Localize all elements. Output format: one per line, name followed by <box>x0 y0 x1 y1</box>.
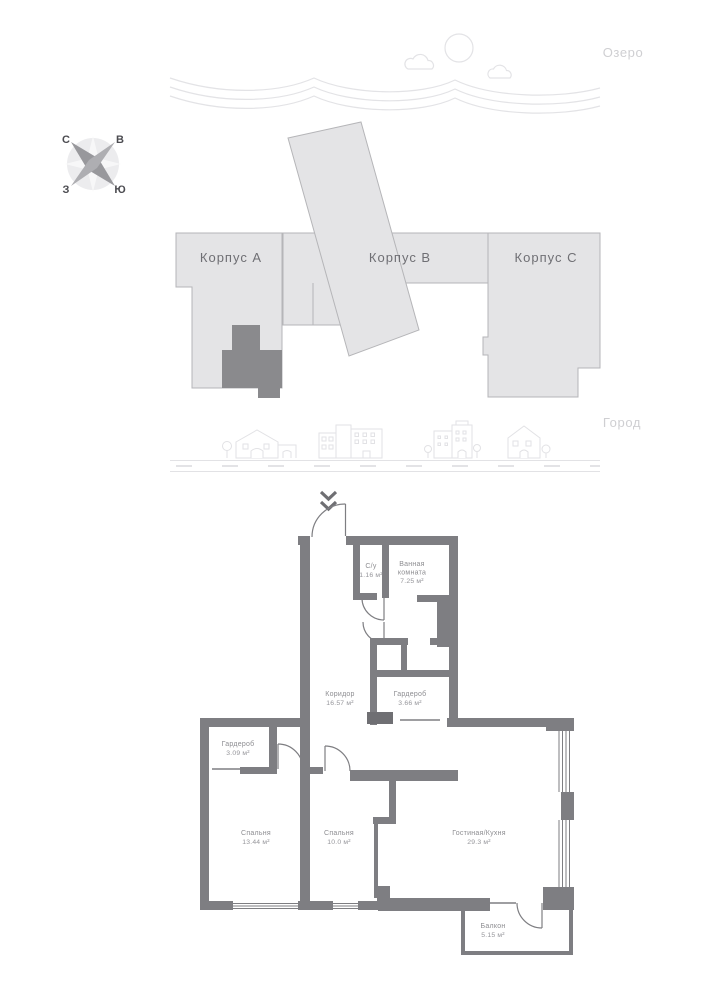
buildings-sketch <box>425 421 481 458</box>
room-area: 1.16 м² <box>359 572 383 579</box>
room-name: Ванная <box>399 561 424 568</box>
room-label-wardrobe-1: Гардероб 3.66 м² <box>394 690 427 707</box>
city-label: Город <box>603 415 641 430</box>
room-area: 29.3 м² <box>467 839 491 846</box>
building-c-label: Корпус С <box>515 250 578 265</box>
buildings-sketch <box>319 425 382 458</box>
plan-canvas: Озеро С В З Ю Корпус А Корпус В Корпус С <box>0 0 707 1000</box>
lake-label: Озеро <box>603 45 644 60</box>
room-name: Коридор <box>325 691 354 698</box>
road <box>170 461 600 472</box>
room-label-balcony: Балкон 5.15 м² <box>481 923 506 939</box>
opening-lines <box>212 720 516 903</box>
sun-icon <box>445 34 473 62</box>
room-label-bathroom: Ванная комната 7.25 м² <box>398 561 426 585</box>
room-name: Гардероб <box>394 690 427 698</box>
room-label-su: С/у 1.16 м² <box>359 563 383 579</box>
room-area: 3.09 м² <box>226 750 250 757</box>
room-name: С/у <box>365 563 377 570</box>
room-area: 16.57 м² <box>326 700 354 707</box>
compass-icon: С В З Ю <box>62 134 126 196</box>
building-a-label: Корпус А <box>200 250 262 265</box>
room-area: 3.66 м² <box>398 700 422 707</box>
windows <box>233 731 570 909</box>
room-label-corridor: Коридор 16.57 м² <box>325 691 354 707</box>
room-area: 7.25 м² <box>400 578 424 585</box>
room-label-living-kitchen: Гостиная/Кухня 29.3 м² <box>452 830 506 846</box>
room-name: Балкон <box>481 923 506 930</box>
compass-west-label: З <box>63 184 70 196</box>
site-plan: Корпус А Корпус В Корпус С <box>176 122 600 398</box>
room-label-bedroom-1: Спальня 13.44 м² <box>241 830 271 846</box>
room-area: 5.15 м² <box>481 932 505 939</box>
house-sketch <box>223 430 297 458</box>
room-name: Спальня <box>324 830 354 837</box>
room-label-bedroom-2: Спальня 10.0 м² <box>324 830 354 846</box>
floor-plan: С/у 1.16 м² Ванная комната 7.25 м² Корид… <box>200 492 574 955</box>
compass-south-label: Ю <box>114 184 125 196</box>
room-name: Гардероб <box>222 740 255 748</box>
room-label-wardrobe-2: Гардероб 3.09 м² <box>222 740 255 757</box>
walls <box>200 536 574 955</box>
floorplan-page: Озеро С В З Ю Корпус А Корпус В Корпус С <box>0 0 707 1000</box>
house-sketch <box>508 426 550 458</box>
room-area: 13.44 м² <box>242 839 270 846</box>
cloud-icon <box>488 65 511 78</box>
room-area: 10.0 м² <box>327 839 351 846</box>
shaft-block <box>367 712 393 724</box>
city-skyline <box>170 421 600 472</box>
compass-north-label: С <box>62 134 70 146</box>
cloud-icon <box>405 54 434 69</box>
room-name: комната <box>398 570 426 577</box>
building-b-label: Корпус В <box>369 250 431 265</box>
room-name: Гостиная/Кухня <box>452 830 506 837</box>
compass-east-label: В <box>116 134 124 146</box>
room-name: Спальня <box>241 830 271 837</box>
lake-waves <box>170 34 600 113</box>
